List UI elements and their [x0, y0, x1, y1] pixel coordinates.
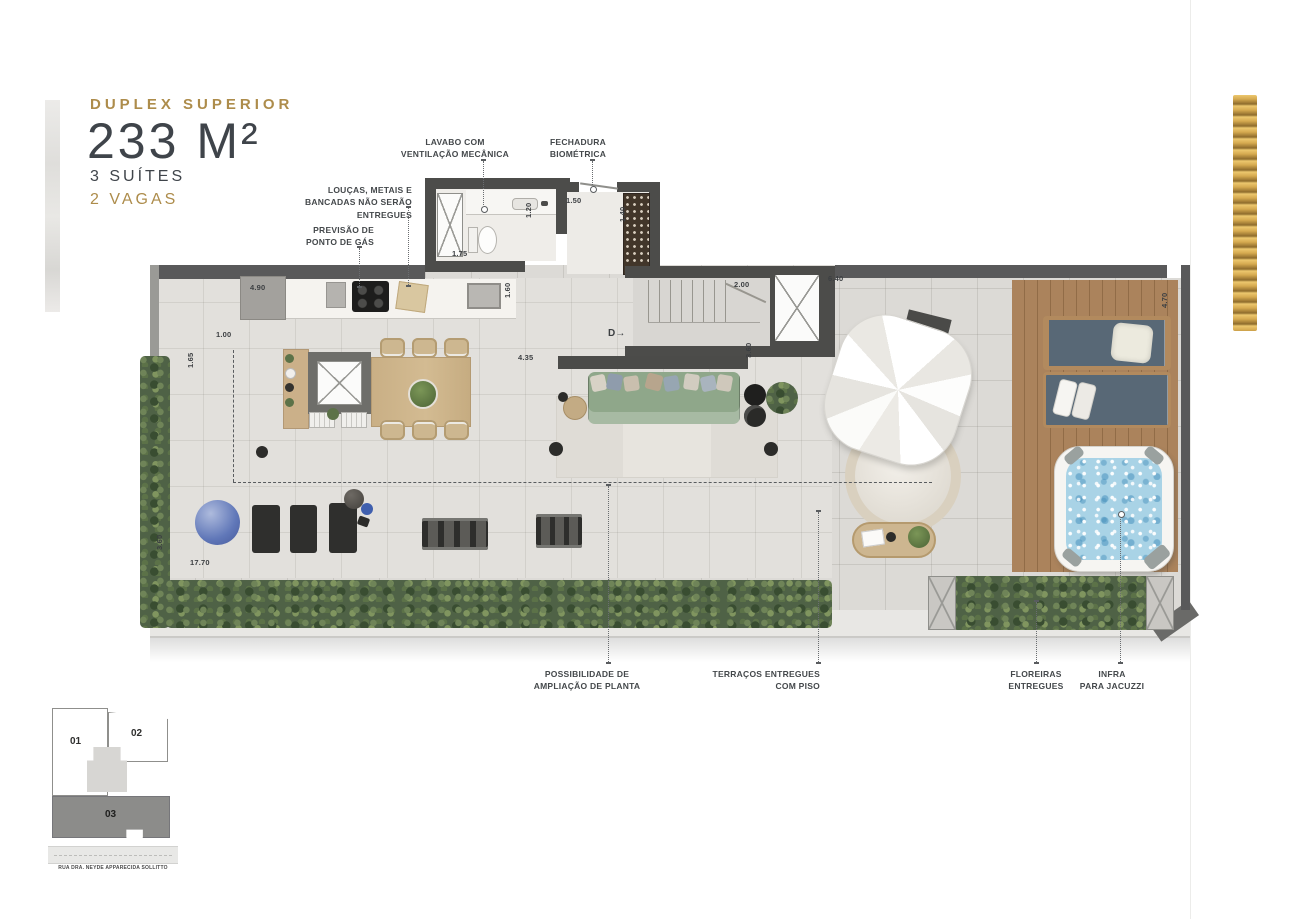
table-centerpiece-plant: [408, 379, 438, 409]
island-jar: [285, 368, 296, 379]
unit-suites-label: 3 SUÍTES: [90, 168, 185, 186]
island-plant: [285, 354, 294, 363]
door-direction-label: D→: [608, 328, 626, 339]
exercise-mat: [290, 505, 317, 553]
expansion-boundary-v: [233, 350, 234, 482]
planter-bottom: [166, 580, 832, 628]
toilet-bowl: [478, 226, 497, 254]
bath-wall-bottom: [425, 261, 525, 272]
bottle-crate: [341, 412, 367, 428]
marble-accent-strip: [45, 100, 60, 312]
tray-plant: [908, 526, 930, 548]
sofa-pillow: [606, 373, 624, 391]
callout-jacuzzi: INFRA PARA JACUZZI: [1072, 668, 1152, 693]
dim-entry-width: 1.50: [566, 196, 581, 205]
callout-fixtures: LOUÇAS, METAIS E BANCADAS NÃO SERÃO ENTR…: [270, 184, 412, 221]
bath-wall-right: [556, 178, 567, 234]
island-pot: [285, 383, 294, 392]
sofa-pillow: [663, 375, 680, 392]
dim-counter-side: 1.60: [503, 283, 512, 298]
lounger-pillow: [1110, 322, 1154, 364]
dining-chair: [380, 420, 405, 440]
callout-lavabo: LAVABO COM VENTILAÇÃO MECÂNICA: [395, 136, 515, 161]
bath-wall-top: [425, 178, 570, 189]
dining-chair: [444, 338, 469, 358]
wall-right-edge: [1181, 265, 1190, 610]
side-table: [744, 405, 766, 427]
kitchen-sink: [467, 283, 501, 309]
sofa-pillow: [623, 375, 640, 392]
weight-rack: [536, 514, 582, 548]
dining-chair: [444, 420, 469, 440]
dim-left-terrace-depth: 3.60: [155, 535, 164, 550]
keyplan-unit-01-label: 01: [70, 736, 81, 747]
unit-area-label: 233 M²: [87, 112, 261, 170]
stair-treads: [648, 280, 726, 323]
dim-kitchen-depth: 1.65: [186, 353, 195, 368]
leader-jacuzzi: [1120, 519, 1121, 662]
unit-parking-label: 2 VAGAS: [90, 191, 178, 209]
dim-bath-width: 1.75: [452, 249, 467, 258]
expansion-boundary-h: [233, 482, 932, 483]
side-table: [744, 384, 766, 406]
dim-kitchen-width: 4.90: [250, 283, 265, 292]
entry-wall-right: [649, 182, 660, 274]
dim-side-strip: 1.00: [216, 330, 231, 339]
tray-card: [861, 529, 885, 548]
keyplan-unit-02-label: 02: [131, 728, 142, 739]
bath-wall-left: [425, 178, 436, 272]
leader-lavabo: [483, 161, 484, 205]
dim-deck-depth: 4.70: [1160, 293, 1169, 308]
entry-wall-top-left: [567, 182, 579, 192]
dim-stair-hall-depth: 3.60: [744, 343, 753, 358]
callout-biometric-lock: FECHADURA BIOMÉTRICA: [523, 136, 633, 161]
callout-terrace: TERRAÇOS ENTREGUES COM PISO: [710, 668, 820, 693]
jacuzzi-water: [1066, 458, 1162, 560]
sofa-pillow: [683, 373, 700, 391]
elevator-shaft: [770, 270, 824, 346]
dumbbell-rack: [422, 518, 488, 550]
planter-brace: [1146, 576, 1174, 630]
dim-living-width: 4.35: [518, 353, 533, 362]
small-ball: [361, 503, 373, 515]
leader-gas: [359, 248, 360, 286]
sofa-pillow: [700, 375, 718, 393]
leader-expansion: [608, 486, 609, 662]
wall-top-right: [835, 265, 1190, 278]
callout-planters: FLOREIRAS ENTREGUES: [996, 668, 1076, 693]
keyplan-unit-03-label: 03: [105, 809, 116, 820]
leader-fixtures: [408, 208, 409, 285]
exercise-mat: [252, 505, 280, 553]
floor-spot: [256, 446, 268, 458]
dim-total-width: 17.70: [190, 558, 210, 567]
planter-brace: [928, 576, 956, 630]
wall-top-kitchen: [150, 265, 425, 279]
kettle: [558, 392, 568, 402]
floor-plan-page: DUPLEX SUPERIOR 233 M² 3 SUÍTES 2 VAGAS: [0, 0, 1304, 919]
toilet-tank: [468, 227, 478, 253]
bath-faucet: [541, 201, 548, 206]
island-plant: [327, 408, 339, 420]
page-divider-line: [1190, 0, 1191, 919]
slab-shadow: [150, 636, 1190, 662]
media-console: [558, 356, 748, 369]
floor-spot: [764, 442, 778, 456]
dim-entry-depth: 1.40: [618, 207, 627, 222]
dining-chair: [412, 338, 437, 358]
leader-biometric: [592, 161, 593, 185]
dining-chair: [412, 420, 437, 440]
potted-plant: [766, 382, 798, 414]
unit-type-label: DUPLEX SUPERIOR: [90, 96, 293, 113]
planter-right: [934, 576, 1174, 630]
sofa-pillow: [716, 374, 734, 392]
grill-hatch: [317, 361, 362, 405]
callout-gas-point: PREVISÃO DE PONTO DE GÁS: [290, 224, 374, 249]
leader-planters: [1036, 602, 1037, 662]
stair-landing-line: [648, 322, 760, 323]
tray-cup: [886, 532, 896, 542]
shaft-hatch: [437, 193, 463, 257]
cutting-board: [395, 281, 429, 313]
exercise-mat: [329, 503, 357, 553]
keyplan-street-label: RUA DRA. NEYDE APPARECIDA SOLLITTO: [36, 865, 190, 871]
keyplan-street: [48, 846, 178, 864]
leader-terrace: [818, 512, 819, 662]
wine-rack: [623, 193, 650, 275]
dim-bath-depth: 1.20: [524, 203, 533, 218]
dim-stair-width: 2.00: [734, 280, 749, 289]
coffee-machine: [326, 282, 346, 308]
callout-expansion: POSSIBILIDADE DE AMPLIAÇÃO DE PLANTA: [516, 668, 658, 693]
dim-terrace-right-width: 6.40: [828, 274, 843, 283]
gold-slat-accent: [1233, 95, 1257, 331]
sofa-pillow: [590, 374, 608, 393]
entry-door-leaf: [580, 182, 618, 189]
floor-spot: [549, 442, 563, 456]
exercise-ball: [195, 500, 240, 545]
island-plant: [285, 398, 294, 407]
dining-chair: [380, 338, 405, 358]
